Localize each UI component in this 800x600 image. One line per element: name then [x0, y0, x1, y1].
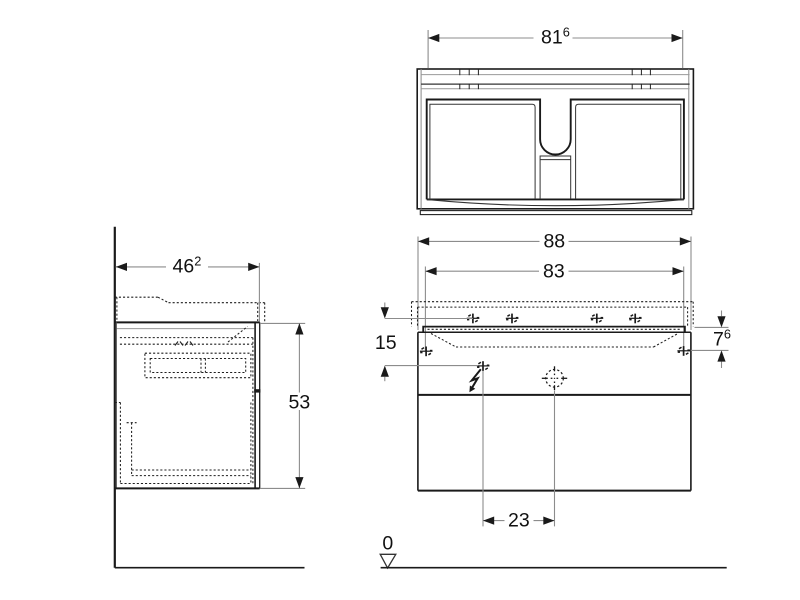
svg-text:88: 88	[543, 231, 565, 253]
svg-text:816: 816	[541, 24, 570, 48]
svg-text:0: 0	[382, 533, 393, 555]
svg-text:15: 15	[375, 332, 397, 354]
svg-text:76: 76	[713, 326, 731, 350]
svg-text:53: 53	[289, 391, 311, 413]
svg-text:23: 23	[508, 509, 530, 531]
svg-text:462: 462	[172, 253, 201, 277]
svg-text:83: 83	[543, 260, 565, 282]
